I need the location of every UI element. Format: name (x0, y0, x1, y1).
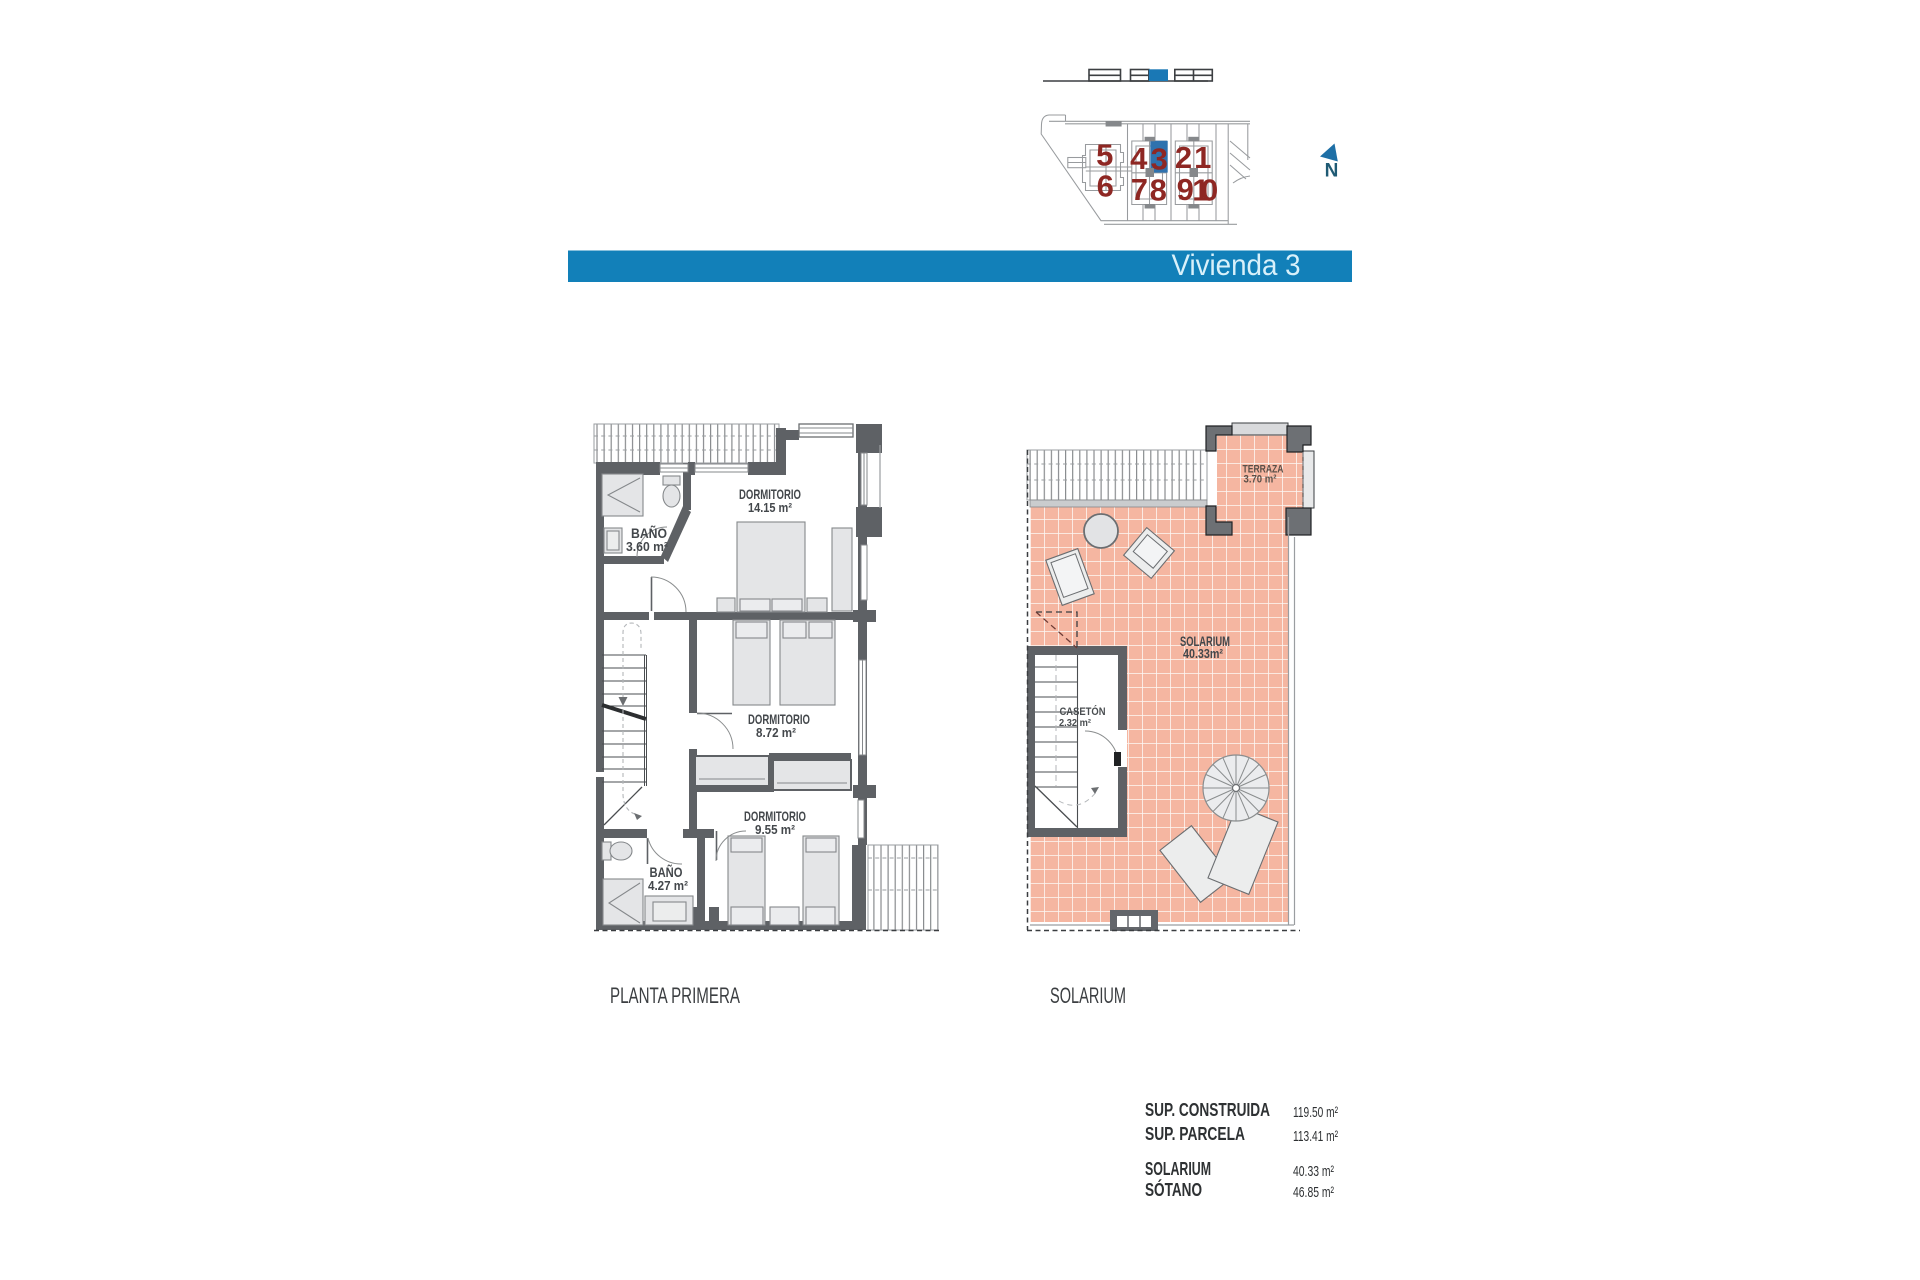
svg-text:N: N (1325, 161, 1339, 182)
svg-text:7: 7 (1131, 172, 1148, 207)
svg-text:SUP. CONSTRUIDA: SUP. CONSTRUIDA (1145, 1100, 1270, 1120)
svg-text:SUP. PARCELA: SUP. PARCELA (1145, 1124, 1245, 1144)
svg-text:5: 5 (1096, 138, 1113, 173)
svg-text:40.33 m²: 40.33 m² (1293, 1163, 1334, 1180)
svg-text:119.50 m²: 119.50 m² (1293, 1104, 1338, 1121)
svg-text:113.41 m²: 113.41 m² (1293, 1128, 1338, 1145)
svg-text:46.85 m²: 46.85 m² (1293, 1184, 1334, 1201)
svg-text:1: 1 (1194, 140, 1211, 175)
svg-text:8.72 m²: 8.72 m² (756, 725, 797, 740)
svg-text:SÓTANO: SÓTANO (1145, 1179, 1202, 1200)
svg-text:3: 3 (1151, 142, 1168, 177)
svg-text:PLANTA PRIMERA: PLANTA PRIMERA (610, 983, 740, 1008)
svg-text:3.70 m²: 3.70 m² (1244, 474, 1277, 486)
svg-text:9.55 m²: 9.55 m² (755, 822, 796, 837)
svg-text:10: 10 (1192, 173, 1218, 208)
svg-text:8: 8 (1150, 173, 1167, 208)
svg-text:9: 9 (1177, 172, 1194, 207)
svg-text:SOLARIUM: SOLARIUM (1050, 983, 1126, 1008)
svg-text:6: 6 (1097, 169, 1114, 204)
svg-text:2: 2 (1175, 140, 1192, 175)
svg-text:SOLARIUM: SOLARIUM (1145, 1159, 1211, 1179)
svg-text:2.32 m²: 2.32 m² (1059, 717, 1091, 729)
svg-text:4: 4 (1130, 141, 1148, 176)
svg-text:4.27 m²: 4.27 m² (648, 878, 689, 893)
svg-text:Vivienda 3: Vivienda 3 (1172, 249, 1301, 282)
svg-text:14.15 m²: 14.15 m² (748, 500, 793, 515)
svg-text:40.33m²: 40.33m² (1183, 646, 1224, 661)
svg-text:3.60 m²: 3.60 m² (626, 539, 669, 554)
